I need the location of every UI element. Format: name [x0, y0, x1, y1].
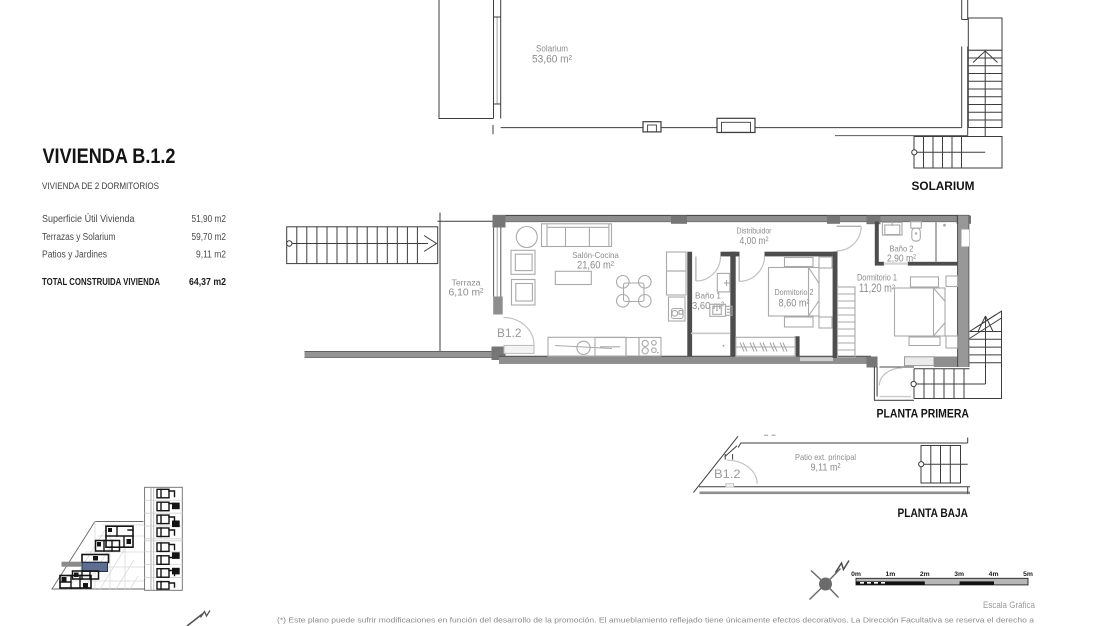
svg-text:Dormitorio 1: Dormitorio 1 [857, 273, 897, 283]
svg-text:Dormitorio 2: Dormitorio 2 [775, 287, 814, 297]
svg-text:(*) Este plano puede sufrir mo: (*) Este plano puede sufrir modificacion… [277, 616, 1035, 625]
svg-text:3m: 3m [954, 571, 964, 578]
svg-text:64,37 m2: 64,37 m2 [189, 277, 226, 288]
svg-text:21,60 m²: 21,60 m² [577, 260, 614, 272]
svg-text:9,11 m2: 9,11 m2 [196, 250, 226, 261]
svg-text:9,11 m²: 9,11 m² [811, 462, 841, 474]
svg-text:PLANTA PRIMERA: PLANTA PRIMERA [877, 407, 970, 421]
svg-text:B1.2: B1.2 [497, 328, 522, 340]
svg-text:8,60 m²: 8,60 m² [779, 298, 810, 310]
svg-text:2m: 2m [920, 571, 930, 578]
svg-text:5m: 5m [1023, 571, 1033, 578]
svg-text:4,00 m²: 4,00 m² [740, 235, 769, 247]
svg-text:SOLARIUM: SOLARIUM [912, 181, 975, 193]
svg-text:4m: 4m [989, 571, 999, 578]
svg-text:TOTAL CONSTRUIDA VIVIENDA: TOTAL CONSTRUIDA VIVIENDA [42, 277, 160, 288]
svg-text:Terrazas y Solarium: Terrazas y Solarium [42, 232, 116, 243]
svg-text:Superficie Útil Vivienda: Superficie Útil Vivienda [42, 212, 135, 225]
svg-text:VIVIENDA B.1.2: VIVIENDA B.1.2 [43, 144, 176, 168]
svg-text:0m: 0m [851, 571, 861, 578]
svg-text:Solarium: Solarium [536, 44, 568, 54]
svg-text:53,60 m²: 53,60 m² [532, 54, 572, 66]
svg-text:59,70 m2: 59,70 m2 [192, 232, 227, 243]
svg-text:Patio ext. principal: Patio ext. principal [795, 452, 856, 462]
svg-text:1m: 1m [885, 571, 895, 578]
svg-text:Escala Gráfica: Escala Gráfica [983, 600, 1035, 610]
svg-text:Salón-Cocina: Salón-Cocina [572, 250, 619, 260]
svg-text:Terraza: Terraza [452, 278, 481, 288]
svg-text:Patios y Jardines: Patios y Jardines [42, 250, 107, 261]
svg-text:2,90 m²: 2,90 m² [887, 253, 916, 265]
svg-text:6,10 m²: 6,10 m² [449, 288, 485, 299]
svg-text:51,90 m2: 51,90 m2 [192, 214, 227, 225]
svg-text:11,20 m²: 11,20 m² [859, 283, 895, 295]
svg-text:PLANTA BAJA: PLANTA BAJA [898, 506, 969, 520]
svg-text:Distribuidor: Distribuidor [737, 226, 772, 236]
svg-text:B1.2: B1.2 [714, 469, 741, 481]
svg-text:VIVIENDA DE 2 DORMITORIOS: VIVIENDA DE 2 DORMITORIOS [42, 181, 159, 192]
